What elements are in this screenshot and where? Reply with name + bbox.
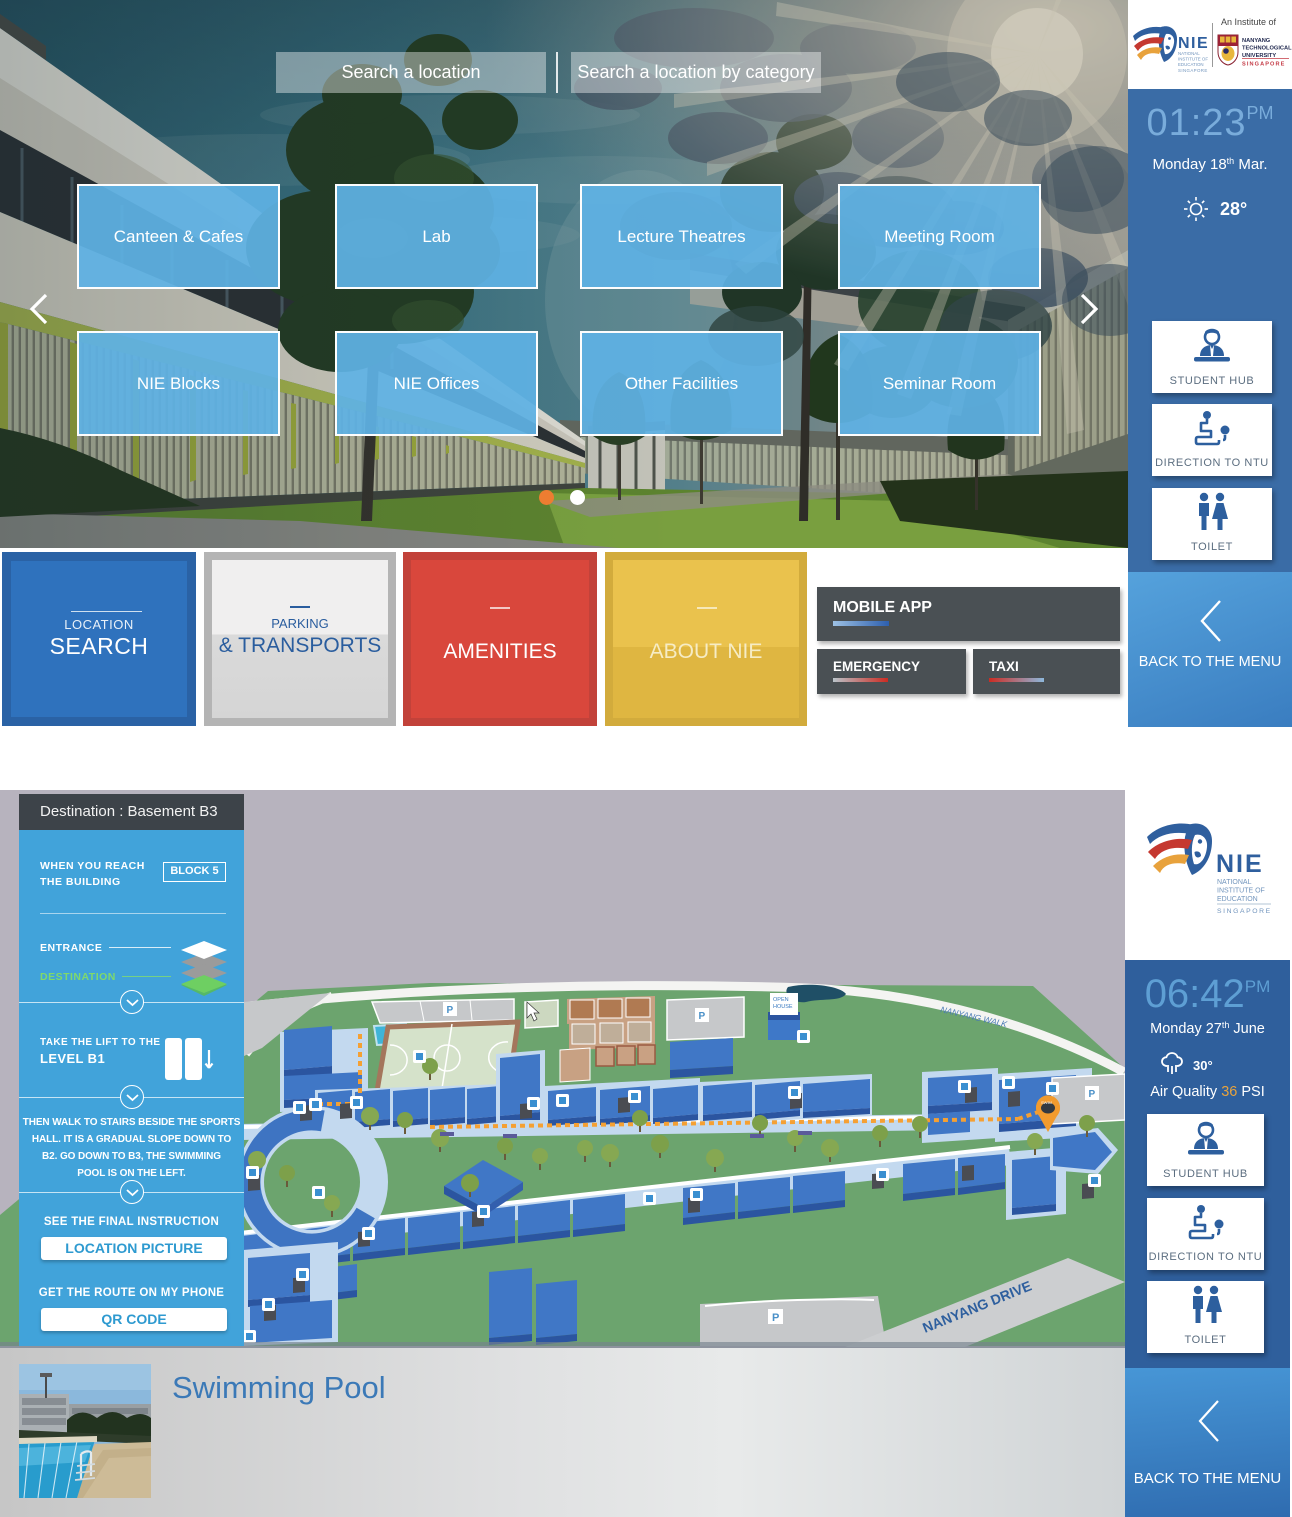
svg-text:NATIONAL: NATIONAL	[1178, 51, 1200, 56]
svg-text:P: P	[1089, 1089, 1096, 1100]
svg-text:NATIONAL: NATIONAL	[1217, 879, 1252, 886]
svg-text:SWIM: SWIM	[1041, 1100, 1052, 1105]
svg-text:INSTITUTE OF: INSTITUTE OF	[1178, 57, 1208, 62]
svg-text:SINGAPORE: SINGAPORE	[1178, 68, 1208, 72]
svg-text:P: P	[699, 1011, 706, 1022]
svg-text:OPEN: OPEN	[773, 997, 789, 1003]
svg-text:SINGAPORE: SINGAPORE	[1242, 62, 1285, 68]
svg-text:EDUCATION: EDUCATION	[1217, 896, 1258, 903]
svg-text:P: P	[772, 1312, 779, 1324]
svg-text:NIE: NIE	[1178, 35, 1209, 52]
svg-text:NANYANG: NANYANG	[1242, 38, 1271, 44]
svg-text:UNIVERSITY: UNIVERSITY	[1242, 53, 1276, 59]
svg-text:NIE: NIE	[1216, 850, 1264, 878]
svg-text:HOUSE: HOUSE	[773, 1004, 793, 1010]
svg-text:TECHNOLOGICAL: TECHNOLOGICAL	[1242, 46, 1292, 52]
svg-text:INSTITUTE OF: INSTITUTE OF	[1217, 888, 1265, 895]
svg-text:SINGAPORE: SINGAPORE	[1217, 908, 1272, 915]
svg-text:EDUCATION: EDUCATION	[1178, 62, 1204, 67]
svg-text:P: P	[447, 1005, 454, 1016]
